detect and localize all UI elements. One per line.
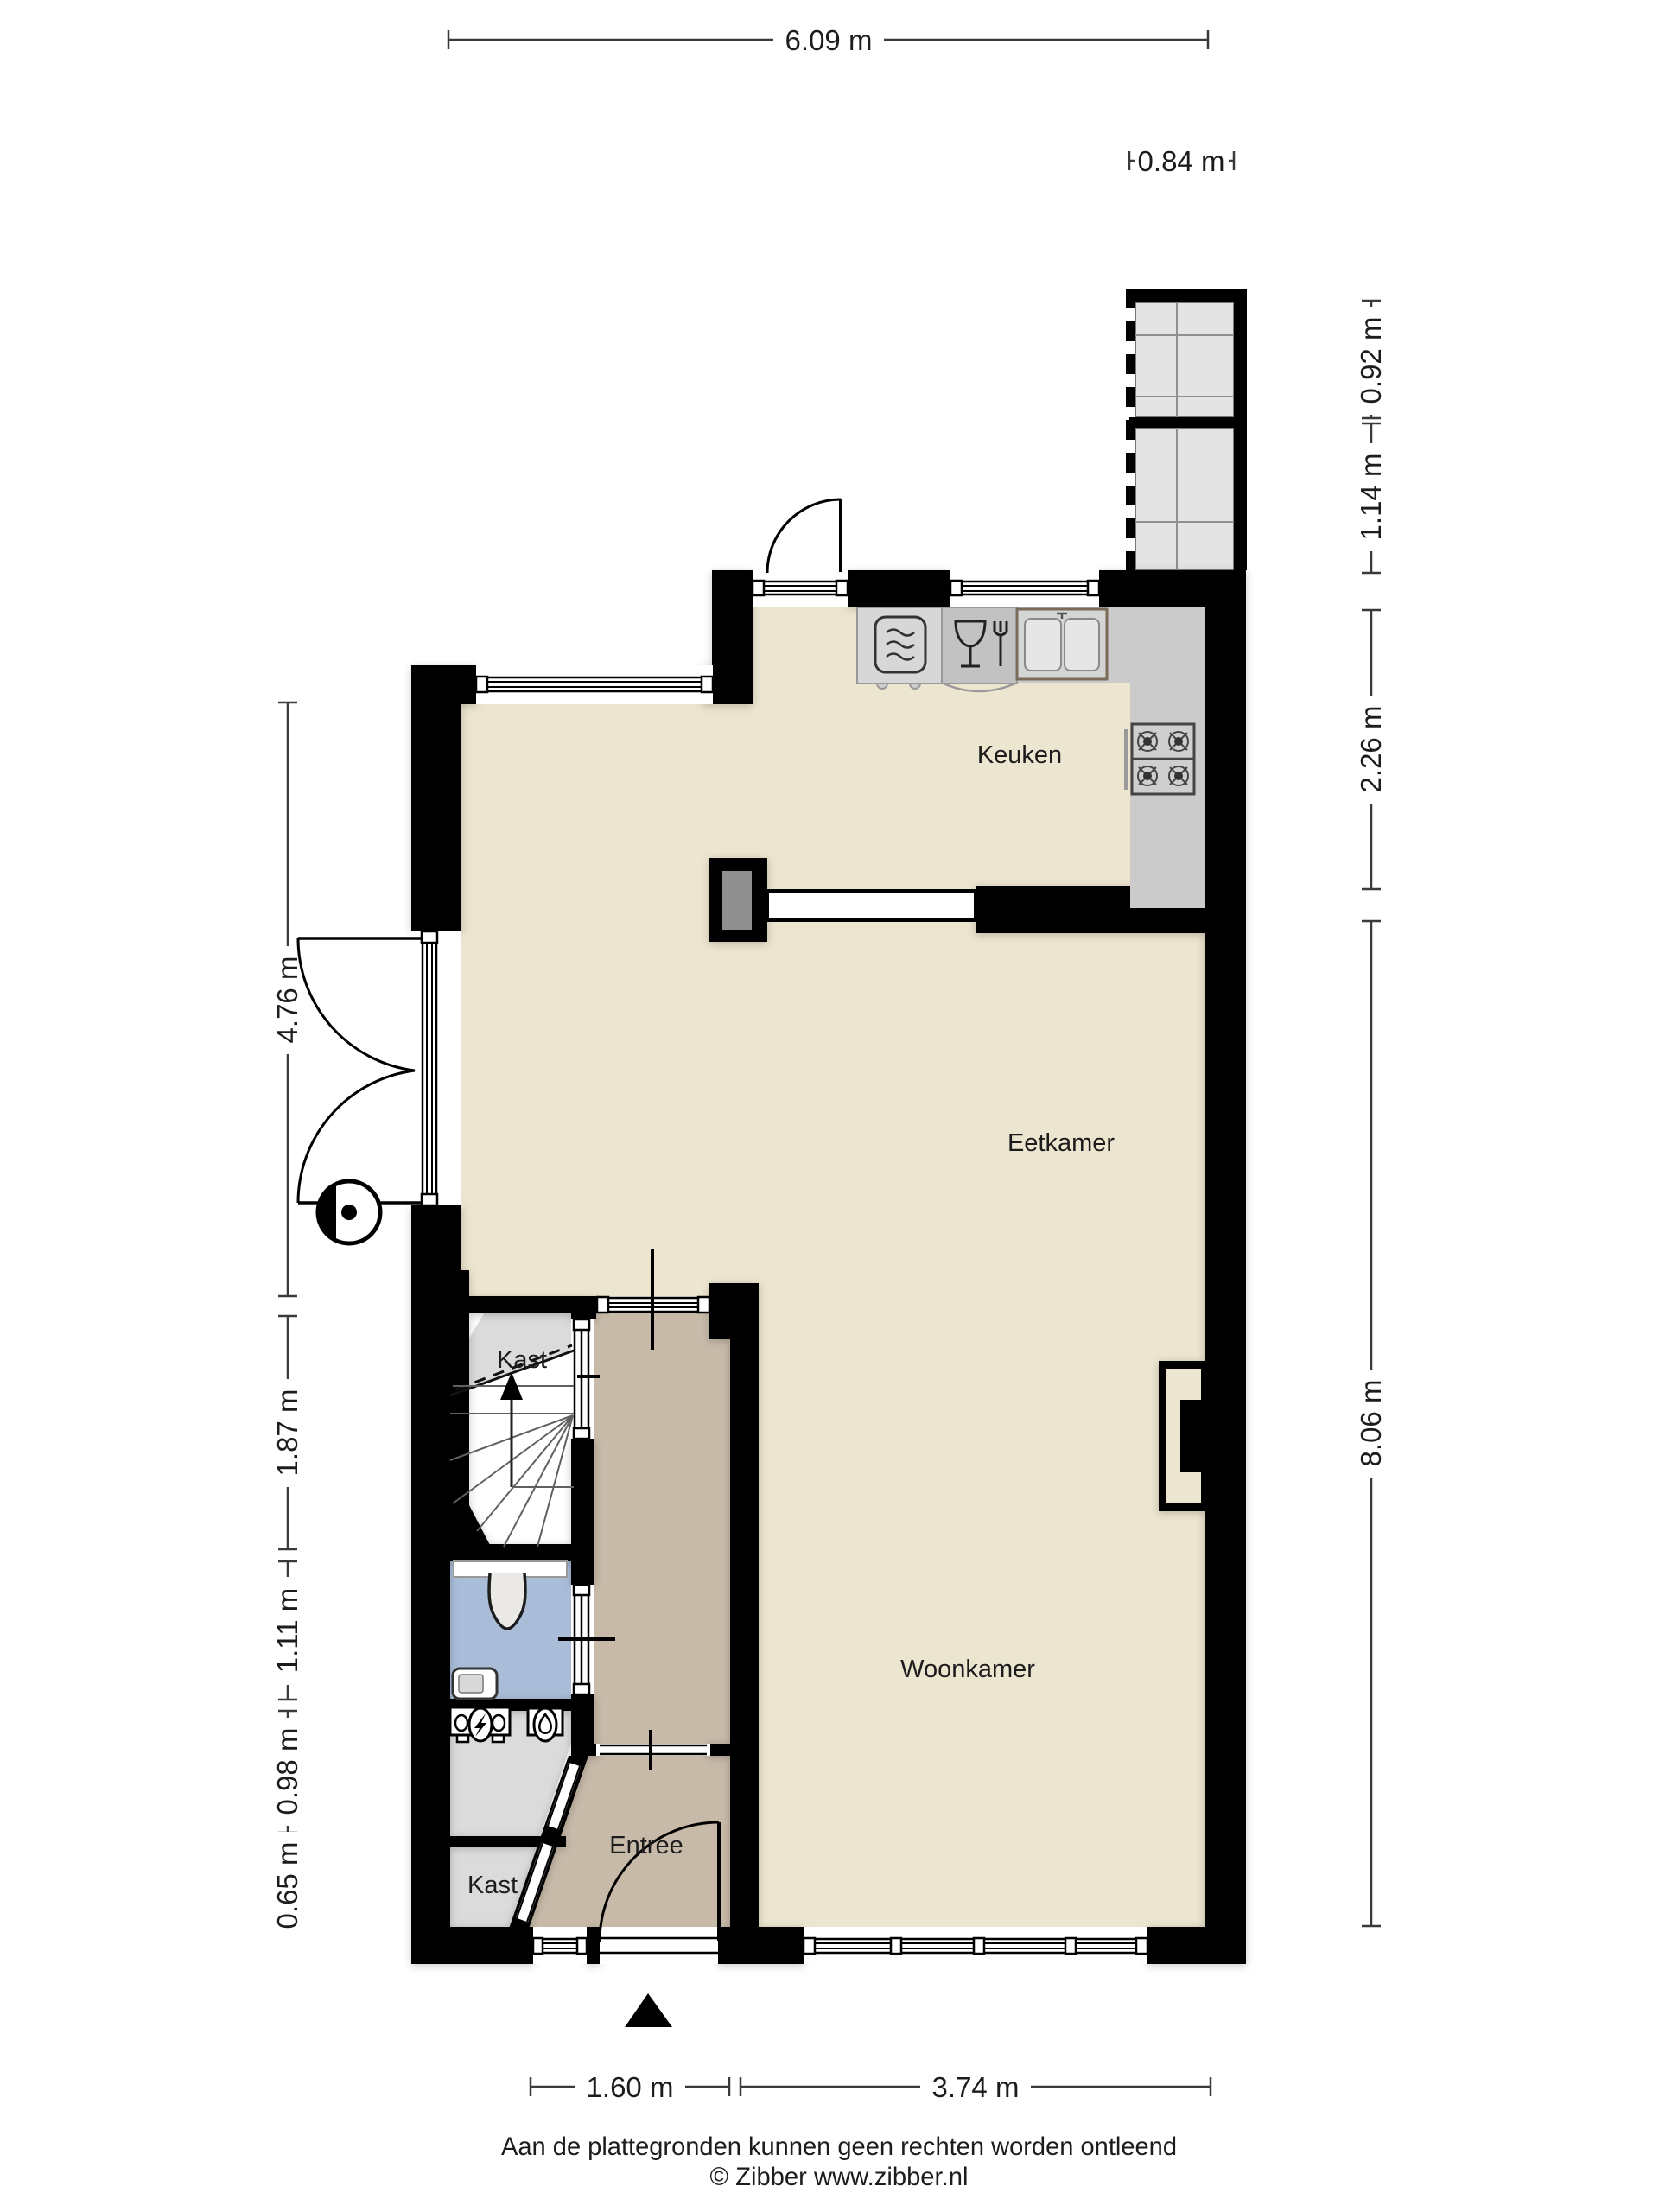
svg-text:1.14 m: 1.14 m (1355, 454, 1387, 541)
svg-text:0.65 m: 0.65 m (271, 1842, 303, 1929)
svg-text:4.76 m: 4.76 m (271, 957, 303, 1044)
svg-text:Kast: Kast (497, 1346, 547, 1374)
svg-text:Woonkamer: Woonkamer (900, 1656, 1035, 1683)
svg-text:0.98 m: 0.98 m (271, 1728, 303, 1815)
svg-text:© Zibber www.zibber.nl: © Zibber www.zibber.nl (710, 2163, 969, 2191)
svg-text:Entree: Entree (609, 1832, 683, 1859)
svg-text:Keuken: Keuken (977, 741, 1062, 769)
svg-text:1.60 m: 1.60 m (587, 2071, 674, 2103)
svg-text:1.11 m: 1.11 m (271, 1588, 303, 1673)
svg-text:2.26 m: 2.26 m (1355, 706, 1387, 793)
svg-text:0.84 m: 0.84 m (1138, 145, 1225, 177)
svg-text:Aan de plattegronden kunnen ge: Aan de plattegronden kunnen geen rechten… (501, 2133, 1177, 2161)
svg-text:1.87 m: 1.87 m (271, 1389, 303, 1477)
svg-text:6.09 m: 6.09 m (785, 24, 873, 56)
svg-text:3.74 m: 3.74 m (932, 2071, 1020, 2103)
svg-text:8.06 m: 8.06 m (1355, 1380, 1387, 1467)
svg-text:Eetkamer: Eetkamer (1007, 1129, 1115, 1157)
svg-text:Kast: Kast (467, 1872, 518, 1899)
svg-text:0.92 m: 0.92 m (1355, 317, 1387, 404)
